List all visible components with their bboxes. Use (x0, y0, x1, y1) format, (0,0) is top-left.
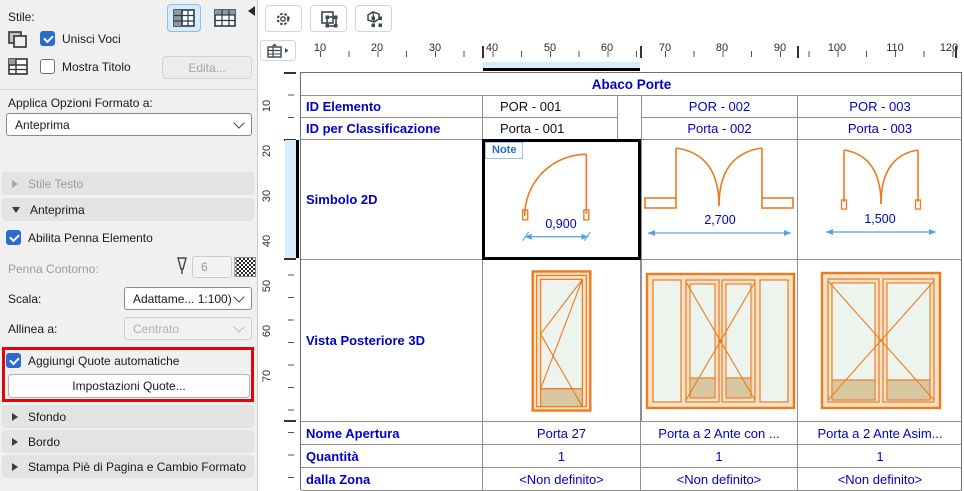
cell-id-classificazione-1[interactable]: Porta - 001 (483, 118, 618, 140)
row-label-simbolo-2d[interactable]: Simbolo 2D (301, 140, 483, 260)
gear-icon (275, 10, 293, 28)
chevron-down-icon (233, 117, 244, 128)
cell-nome-apertura-2[interactable]: Porta a 2 Ante con ... (641, 422, 798, 445)
abilita-penna-row: Abilita Penna Elemento (6, 230, 153, 245)
abilita-penna-label: Abilita Penna Elemento (28, 231, 153, 245)
row-label-quantita[interactable]: Quantità (301, 445, 483, 468)
door-elevation-single (483, 260, 640, 422)
cell-nome-apertura-1[interactable]: Porta 27 (483, 422, 641, 445)
v-ruler-number: 50 (261, 273, 273, 299)
section-stampa[interactable]: Stampa Piè di Pagina e Cambio Formato (2, 455, 254, 478)
style-label: Stile: (8, 10, 35, 24)
cell-id-elemento-2[interactable]: POR - 002 (641, 96, 798, 118)
pen-hatch-swatch[interactable] (236, 257, 256, 277)
horizontal-ruler: 10 20 30 40 50 60 70 80 90 100 110 120 (300, 38, 964, 62)
v-ruler-number: 60 (261, 318, 273, 344)
dimension-label: 1,500 (848, 212, 912, 226)
cell-id-elemento-3[interactable]: POR - 003 (798, 96, 962, 118)
merged-grid-icon (173, 9, 195, 27)
cell-nome-apertura-3[interactable]: Porta a 2 Ante Asim... (798, 422, 962, 445)
door-elevation-double-sidelights (642, 260, 797, 422)
allinea-value: Centrato (133, 322, 179, 336)
allinea-dropdown[interactable]: Centrato (124, 317, 252, 340)
v-ruler-number: 10 (261, 93, 273, 119)
section-sfondo[interactable]: Sfondo (2, 405, 254, 428)
cell-vista-3d-3[interactable] (798, 260, 962, 422)
cell-quantita-2[interactable]: 1 (641, 445, 798, 468)
chevron-right-icon (12, 438, 18, 446)
stampa-label: Stampa Piè di Pagina e Cambio Formato (28, 460, 246, 474)
note-button[interactable]: Note (485, 142, 523, 159)
plain-grid-icon (214, 9, 236, 27)
aggiungi-quote-checkbox[interactable] (6, 353, 21, 368)
cell-dalla-zona-3[interactable]: <Non definito> (798, 468, 962, 491)
door-symbol-double-walls (642, 140, 797, 260)
divider (0, 89, 256, 90)
anteprima-section-label: Anteprima (30, 203, 85, 217)
ruler-major-tick (482, 46, 484, 58)
penna-contorno-label: Penna Contorno: (8, 262, 99, 276)
pen-icon (176, 257, 188, 275)
allinea-label: Allinea a: (8, 322, 57, 336)
marquee-2d-icon (319, 9, 339, 29)
unisci-voci-row: Unisci Voci (40, 31, 121, 46)
chevron-right-icon (12, 180, 18, 188)
cell-quantita-1[interactable]: 1 (483, 445, 641, 468)
scala-dropdown[interactable]: Adattame... 1:100) (124, 287, 252, 310)
cell-quantita-3[interactable]: 1 (798, 445, 962, 468)
schedule-title[interactable]: Abaco Porte (301, 73, 962, 96)
door-elevation-double (798, 260, 962, 422)
ruler-major-tick (955, 46, 957, 58)
section-anteprima[interactable]: Anteprima (2, 198, 254, 221)
cell-simbolo-2d-3[interactable]: 1,500 (798, 140, 962, 260)
dimension-label: 2,700 (688, 213, 752, 227)
chevron-down-icon (233, 321, 244, 332)
cell-vista-3d-2[interactable] (641, 260, 798, 422)
cell-vista-3d-1[interactable] (483, 260, 641, 422)
apply-format-label: Applica Opzioni Formato a: (8, 96, 153, 110)
panel-collapse-icon[interactable] (248, 6, 255, 16)
row-label-dalla-zona[interactable]: dalla Zona (301, 468, 483, 491)
format-options-sidebar: Stile: (0, 0, 258, 491)
style-merged-grid-button[interactable] (167, 4, 201, 32)
chevron-down-icon (233, 291, 244, 302)
scheme-settings-button[interactable] (265, 5, 302, 32)
merge-cells-icon (8, 31, 28, 49)
section-stile-testo[interactable]: Stile Testo (2, 172, 254, 195)
cell-simbolo-2d-2[interactable]: 2,700 (641, 140, 798, 260)
scala-value: Adattame... 1:100) (133, 292, 232, 306)
ruler-major-tick (284, 420, 296, 422)
stile-testo-label: Stile Testo (28, 177, 83, 191)
v-ruler-number: 40 (261, 228, 273, 254)
v-ruler-number: 20 (261, 138, 273, 164)
style-plain-grid-button[interactable] (208, 4, 242, 32)
mostra-titolo-checkbox[interactable] (40, 59, 55, 74)
ruler-major-tick (797, 46, 799, 58)
mostra-titolo-row: Mostra Titolo (40, 59, 131, 74)
schedule-preview-area: 10 20 30 40 50 60 70 80 90 100 110 120 1… (258, 0, 964, 491)
cell-dalla-zona-1[interactable]: <Non definito> (483, 468, 641, 491)
ruler-major-tick (284, 258, 296, 260)
door-schedule-table: Abaco Porte ID Elemento POR - 001 POR - … (300, 72, 962, 490)
vertical-ruler: 10 20 30 40 50 60 70 (258, 62, 300, 491)
apply-format-value: Anteprima (15, 118, 70, 132)
cell-id-classificazione-2[interactable]: Porta - 002 (641, 118, 798, 140)
cell-id-elemento-1[interactable]: POR - 001 (483, 96, 618, 118)
section-bordo[interactable]: Bordo (2, 430, 254, 453)
scala-label: Scala: (8, 292, 41, 306)
sfondo-label: Sfondo (28, 410, 66, 424)
impostazioni-quote-button[interactable]: Impostazioni Quote... (8, 374, 250, 398)
unisci-voci-label: Unisci Voci (62, 32, 121, 46)
v-ruler-number: 30 (261, 183, 273, 209)
ruler-major-tick (284, 72, 296, 74)
abilita-penna-checkbox[interactable] (6, 230, 21, 245)
door-symbol-double (798, 140, 962, 260)
schedule-settings-window: Stile: (0, 0, 964, 491)
column-selection-highlight (483, 62, 640, 71)
row-label-id-classificazione[interactable]: ID per Classificazione (301, 118, 483, 140)
aggiungi-quote-row: Aggiungi Quote automatiche (6, 353, 179, 368)
cell-dalla-zona-2[interactable]: <Non definito> (641, 468, 798, 491)
ruler-ticks (300, 51, 964, 57)
ruler-ticks (288, 72, 294, 491)
marquee-3d-icon (364, 9, 384, 29)
edita-button[interactable]: Edita... (162, 56, 252, 79)
table-header-icon (8, 58, 28, 75)
aggiungi-quote-label: Aggiungi Quote automatiche (28, 354, 179, 368)
edit-gap (619, 97, 640, 139)
pen-number-field[interactable]: 6 (192, 256, 232, 278)
row-selection-highlight (285, 140, 299, 258)
apply-format-dropdown[interactable]: Anteprima (6, 113, 252, 136)
row-label-vista-3d[interactable]: Vista Posteriore 3D (301, 260, 483, 422)
chevron-down-icon (12, 207, 20, 213)
mostra-titolo-label: Mostra Titolo (62, 60, 131, 74)
table-arrows-icon (265, 43, 291, 59)
ruler-major-tick (640, 46, 642, 58)
cell-id-classificazione-3[interactable]: Porta - 003 (798, 118, 962, 140)
select-3d-button[interactable] (355, 5, 392, 32)
row-label-id-elemento[interactable]: ID Elemento (301, 96, 483, 118)
chevron-right-icon (12, 413, 18, 421)
ruler-origin-button[interactable] (260, 40, 296, 61)
chevron-right-icon (12, 463, 18, 471)
dimension-label: 0,900 (529, 217, 593, 231)
v-ruler-number: 70 (261, 363, 273, 389)
row-label-nome-apertura[interactable]: Nome Apertura (301, 422, 483, 445)
unisci-voci-checkbox[interactable] (40, 31, 55, 46)
bordo-label: Bordo (28, 435, 60, 449)
select-2d-button[interactable] (310, 5, 347, 32)
